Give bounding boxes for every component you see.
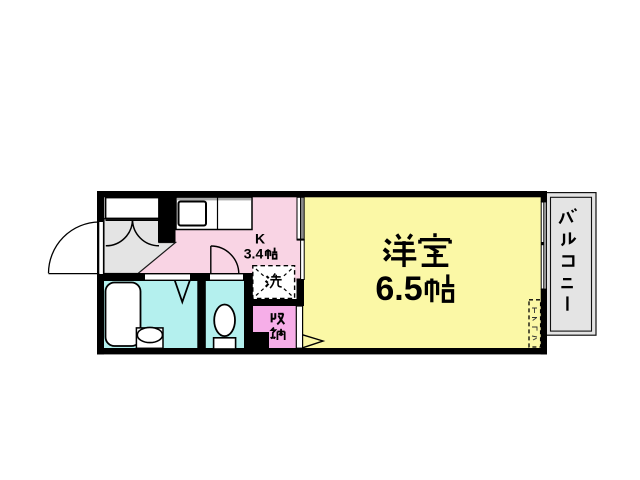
svg-text:K: K [255, 231, 265, 247]
svg-text:3.4: 3.4 [244, 246, 264, 262]
svg-text:6.5: 6.5 [375, 270, 422, 308]
